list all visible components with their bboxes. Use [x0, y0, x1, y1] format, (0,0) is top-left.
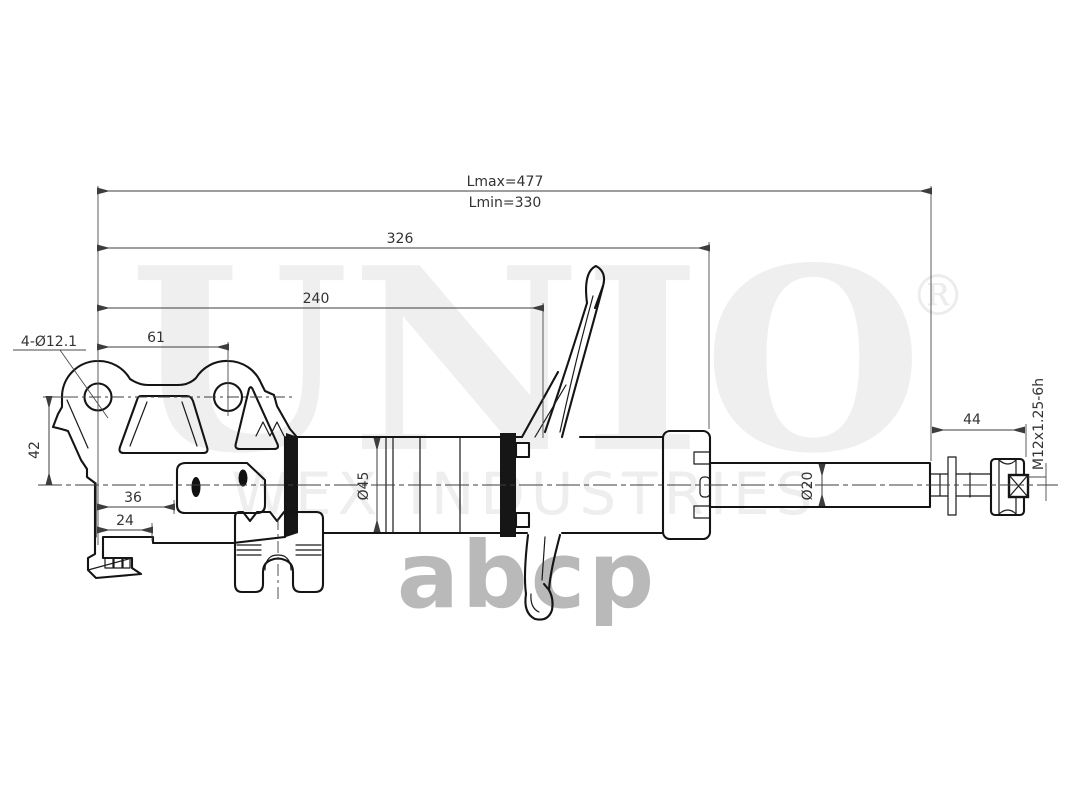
plate-slot-right — [239, 470, 248, 487]
dim-240: 240 — [303, 291, 330, 307]
lock-nut — [991, 459, 1028, 515]
dim-holes: 4-Ø12.1 — [21, 334, 77, 350]
strut-drawing-svg: UNIO ® WEX INDUSTRIES abcp — [0, 0, 1066, 800]
technical-drawing-page: UNIO ® WEX INDUSTRIES abcp — [0, 0, 1066, 800]
dim-thread-spec: M12x1.25-6h — [1031, 378, 1047, 470]
dim-326: 326 — [387, 231, 414, 247]
dim-42: 42 — [27, 441, 43, 459]
dim-lmin: Lmin=330 — [469, 195, 542, 211]
dim-tube-diameter: Ø45 — [356, 472, 372, 501]
dim-61: 61 — [147, 330, 165, 346]
dim-rod-diameter: Ø20 — [800, 472, 816, 501]
dim-lmax: Lmax=477 — [467, 174, 544, 190]
dim-36: 36 — [124, 490, 142, 506]
registered-trademark-icon: ® — [910, 264, 966, 329]
dim-24: 24 — [116, 513, 134, 529]
dim-44: 44 — [963, 412, 981, 428]
plate-slot-left — [192, 477, 201, 497]
watermark-layer: UNIO ® WEX INDUSTRIES abcp — [129, 213, 966, 629]
